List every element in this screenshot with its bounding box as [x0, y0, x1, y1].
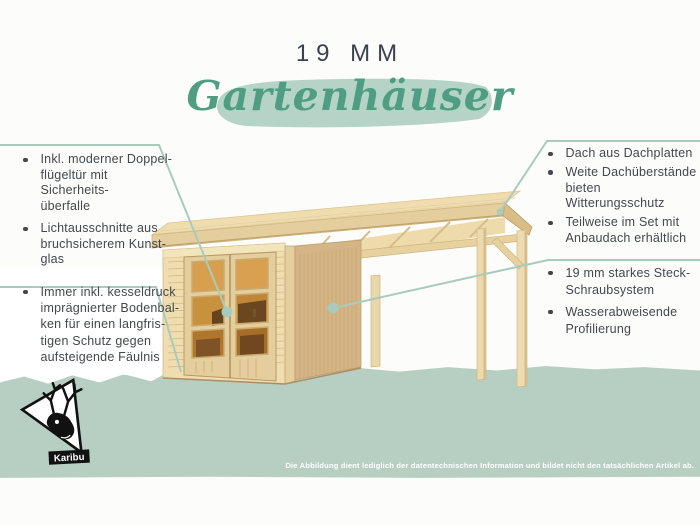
feature-line: bieten Witterungsschutz: [566, 181, 699, 213]
bullet-icon: [548, 170, 553, 175]
feature-line: bruchsicherem Kunst-: [41, 237, 167, 253]
feature-line: ken für einen langfris-: [41, 316, 180, 332]
feature-line: Lichtausschnitte aus: [41, 221, 167, 237]
bullet-icon: [548, 271, 553, 276]
bullet-icon: [23, 227, 28, 232]
bullet-icon: [548, 221, 553, 226]
feature-item: Teilweise im Set mit Anbaudach erhältlic…: [548, 215, 698, 247]
feature-line: Teilweise im Set mit: [566, 215, 687, 231]
feature-list-right-bottom: 19 mm starkes Steck- Schraubsystem Wasse…: [548, 265, 698, 343]
feature-line: Schraubsystem: [566, 282, 691, 299]
feature-line: Profilierung: [566, 321, 678, 338]
feature-line: Inkl. moderner Doppel-: [41, 152, 179, 168]
disclaimer-text: Die Abbildung dient lediglich der datent…: [285, 461, 694, 470]
feature-list-left-bottom: Immer inkl. kesseldruck imprägnierter Bo…: [23, 284, 188, 372]
feature-line: aufsteigende Fäulnis: [41, 349, 180, 365]
door-handle: [253, 309, 256, 317]
feature-item: Lichtausschnitte aus bruchsicherem Kunst…: [23, 221, 178, 268]
feature-line: flügeltür mit Sicherheits-: [41, 168, 179, 199]
logo-brand-text: Karibu: [54, 452, 85, 465]
bullet-icon: [23, 290, 28, 295]
roof-edge-trim: [503, 203, 532, 235]
rear-corner-post: [371, 275, 380, 367]
karibu-logo: Karibu: [10, 376, 112, 478]
feature-item: Wasserabweisende Profilierung: [548, 304, 698, 337]
corner-board: [285, 246, 295, 384]
feature-line: Weite Dachüberstände: [566, 165, 699, 181]
feature-item: 19 mm starkes Steck- Schraubsystem: [548, 265, 698, 298]
bullet-icon: [548, 152, 553, 157]
door-pane: [236, 258, 268, 290]
feature-line: überfalle: [41, 199, 179, 215]
feature-line: glas: [41, 252, 167, 268]
feature-item: Inkl. moderner Doppel- flügeltür mit Sic…: [23, 152, 178, 214]
feature-item: Immer inkl. kesseldruck imprägnierter Bo…: [23, 284, 188, 365]
feature-line: Immer inkl. kesseldruck: [41, 284, 180, 300]
bullet-icon: [548, 310, 553, 315]
feature-item: Weite Dachüberstände bieten Witterungssc…: [548, 165, 698, 212]
feature-list-left-top: Inkl. moderner Doppel- flügeltür mit Sic…: [23, 152, 178, 275]
feature-line: tigen Schutz gegen: [41, 333, 180, 349]
feature-line: imprägnierter Bodenbal-: [41, 300, 180, 316]
bullet-icon: [23, 158, 28, 163]
feature-line: Anbaudach erhältlich: [566, 231, 687, 247]
infographic-page: 19 MM Gartenhäuser: [0, 0, 700, 525]
feature-list-right-top: Dach aus Dachplatten Weite Dachüberständ…: [548, 146, 698, 250]
feature-line: Wasserabweisende: [566, 304, 678, 321]
door-pane: [192, 260, 224, 292]
feature-line: Dach aus Dachplatten: [566, 146, 693, 162]
feature-item: Dach aus Dachplatten: [548, 146, 698, 162]
feature-line: 19 mm starkes Steck-: [566, 265, 691, 282]
